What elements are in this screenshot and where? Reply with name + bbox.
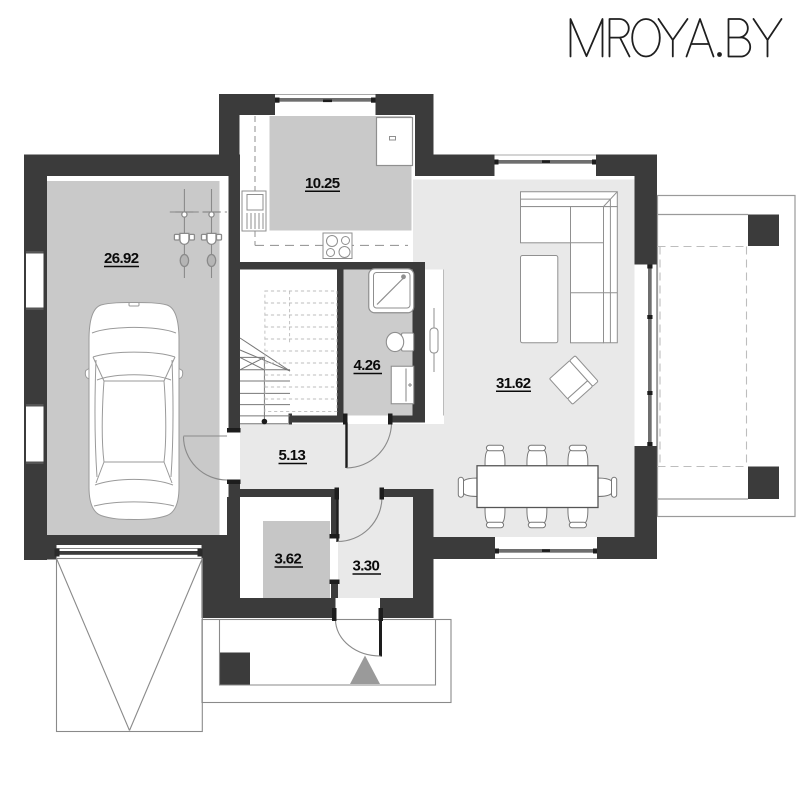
svg-text:26.92: 26.92 (104, 250, 139, 267)
svg-text:4.26: 4.26 (354, 357, 381, 374)
svg-text:5.13: 5.13 (279, 447, 306, 464)
svg-text:31.62: 31.62 (496, 375, 531, 392)
svg-text:3.30: 3.30 (353, 558, 380, 575)
svg-text:10.25: 10.25 (305, 175, 340, 192)
svg-text:3.62: 3.62 (275, 551, 302, 568)
